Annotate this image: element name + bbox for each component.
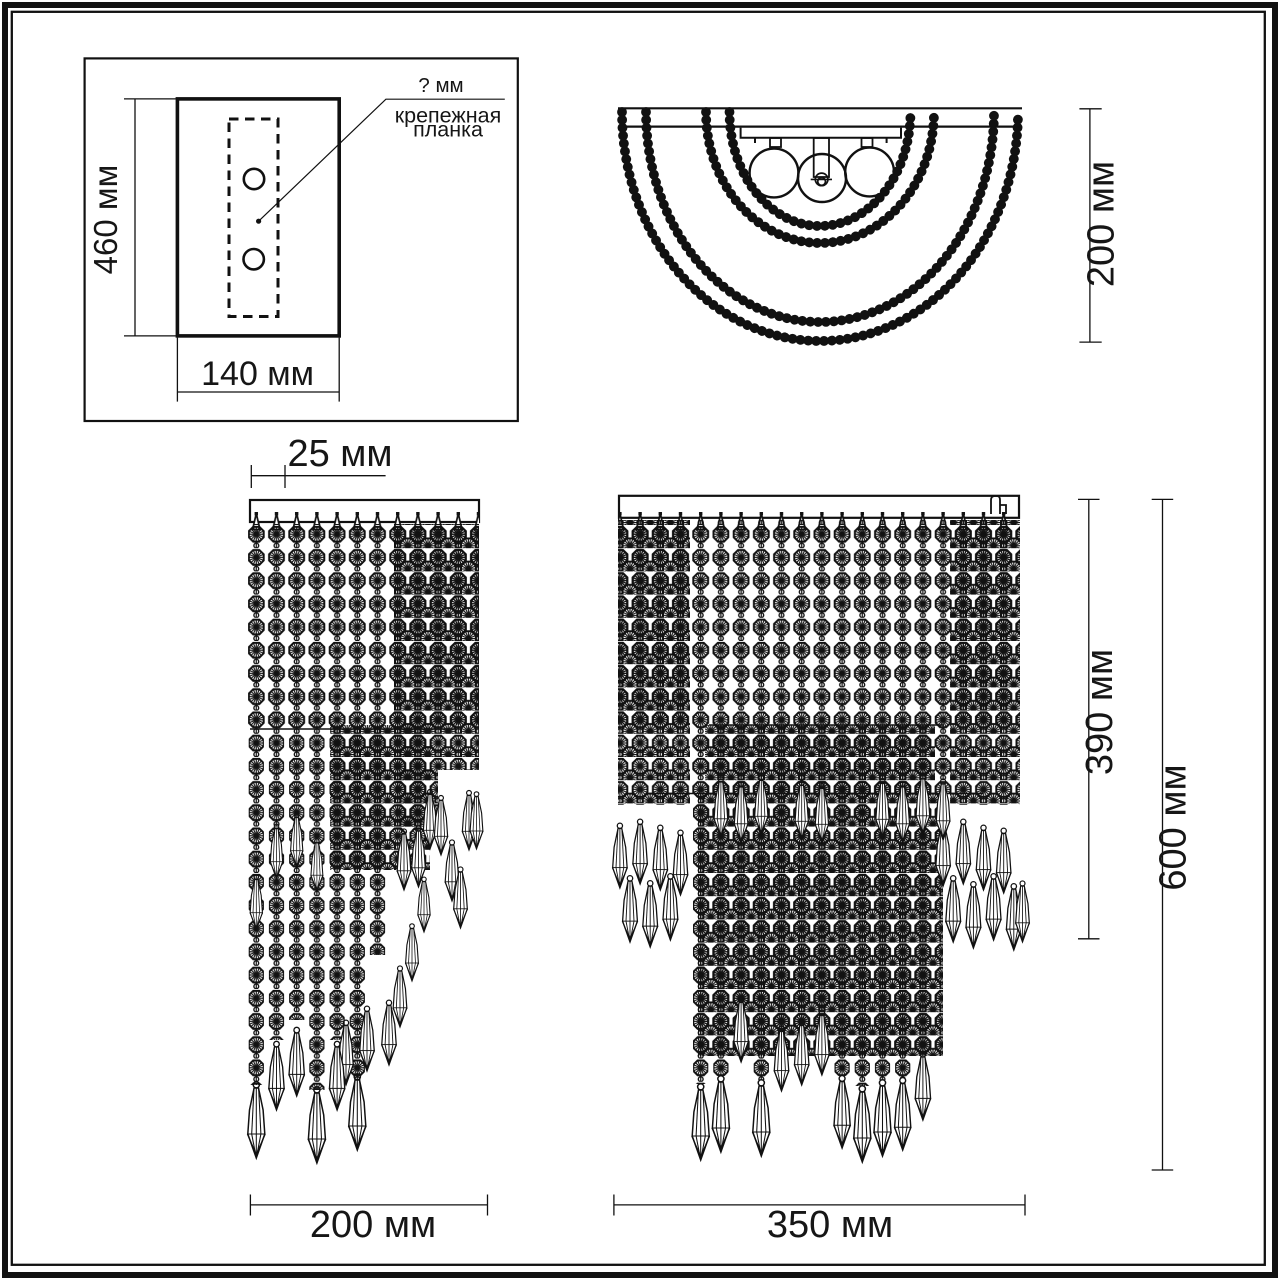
svg-text:460 мм: 460 мм xyxy=(87,165,124,275)
svg-text:планка: планка xyxy=(413,118,483,142)
svg-text:? мм: ? мм xyxy=(418,74,463,97)
svg-text:390 мм: 390 мм xyxy=(1079,649,1121,775)
svg-text:25 мм: 25 мм xyxy=(287,433,392,475)
svg-text:140 мм: 140 мм xyxy=(201,355,314,393)
svg-text:200 мм: 200 мм xyxy=(310,1204,436,1246)
svg-text:600 мм: 600 мм xyxy=(1153,764,1195,890)
svg-text:200 мм: 200 мм xyxy=(1081,161,1123,287)
svg-text:350 мм: 350 мм xyxy=(767,1204,893,1246)
